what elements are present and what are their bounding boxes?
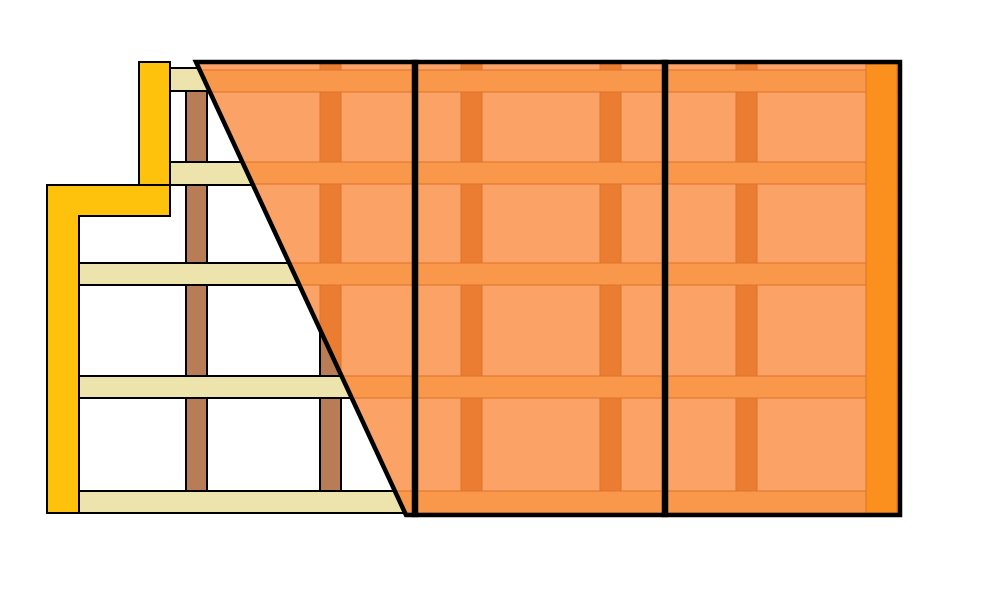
- siding-panel-3-stripe-4: [736, 64, 757, 515]
- siding-panel-2-stripe-2: [461, 64, 482, 515]
- stud-1: [186, 90, 207, 491]
- girt-5: [79, 491, 420, 513]
- corner-trim-step: [47, 185, 170, 513]
- siding-edge-strip: [866, 64, 897, 513]
- wall-siding-diagram: [0, 0, 996, 604]
- siding-panel-2-stripe-3: [600, 64, 621, 515]
- diagram-stage: [0, 0, 996, 604]
- corner-trim-head: [139, 62, 170, 185]
